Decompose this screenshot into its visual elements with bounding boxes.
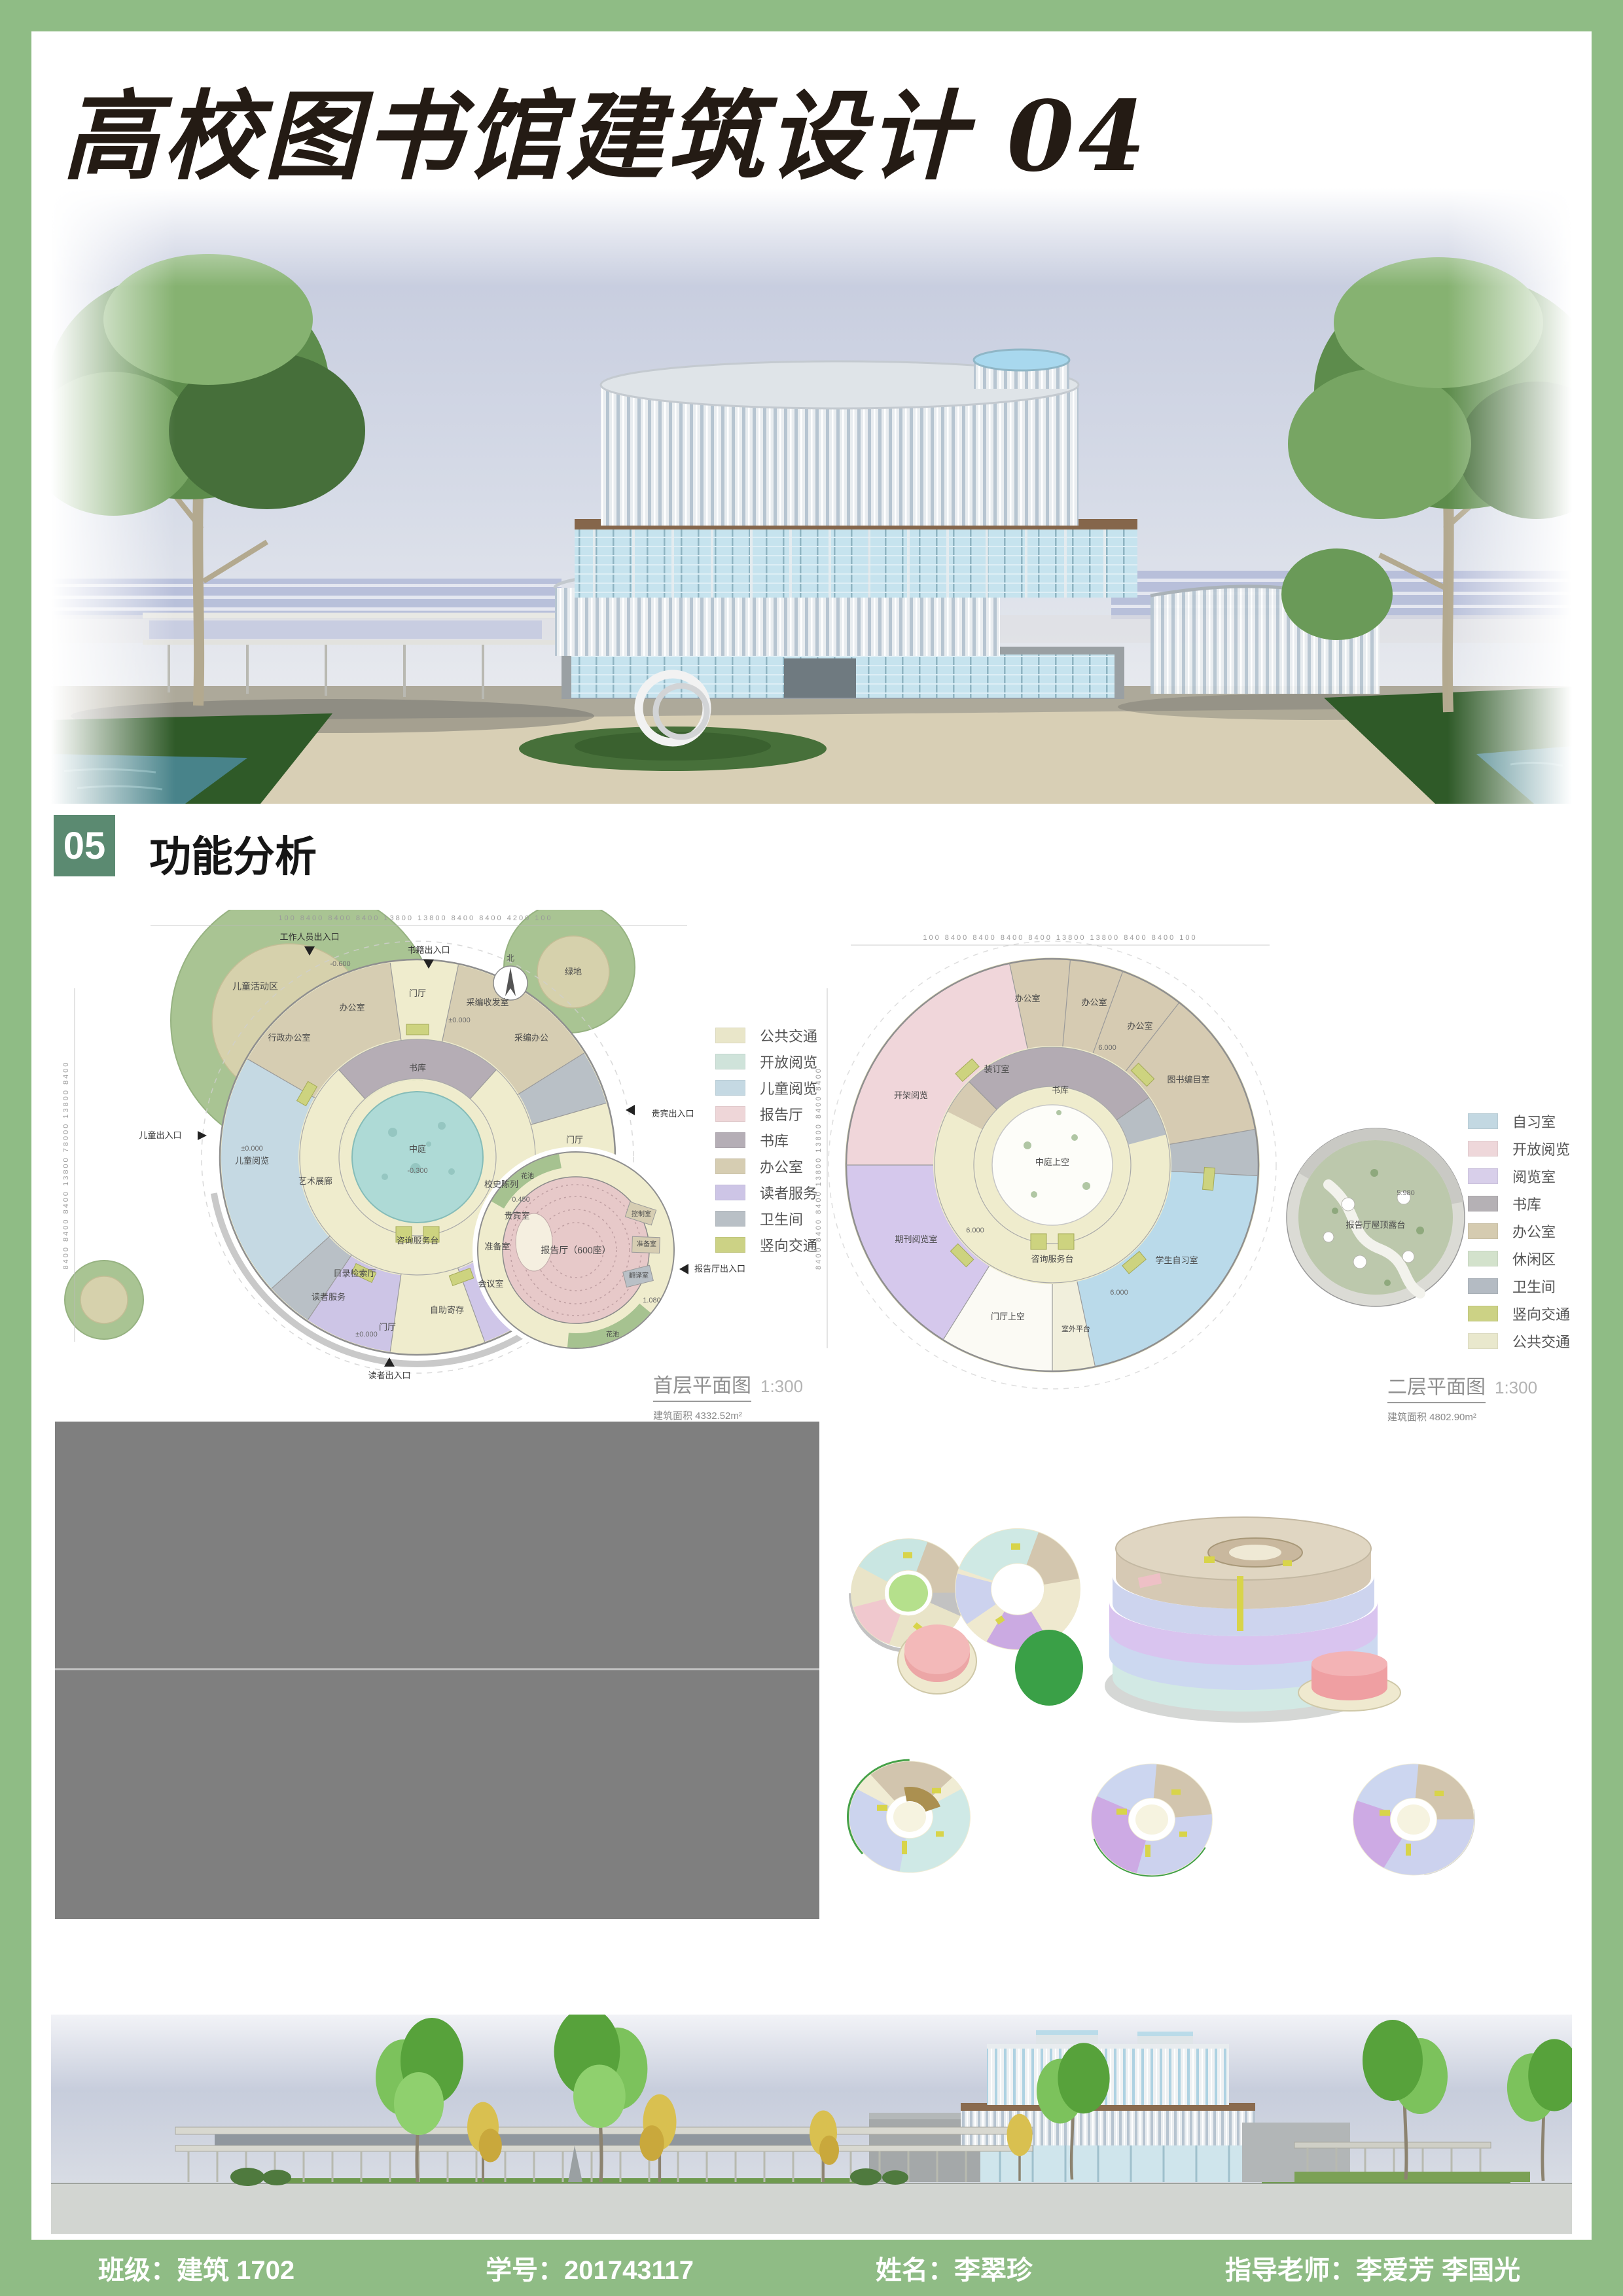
legend-swatch	[715, 1158, 745, 1174]
room-lobby-top: 门厅	[409, 988, 426, 998]
legend-swatch	[1468, 1251, 1498, 1266]
legend-label: 卫生间	[1512, 1276, 1556, 1297]
first-floor-plan: 北 100 8400 8400 8400 13800 13800 8400 84…	[59, 910, 759, 1414]
room-flower2: 花池	[606, 1330, 619, 1338]
legend-label: 办公室	[1512, 1221, 1556, 1242]
legend-label: 公共交通	[1512, 1331, 1570, 1352]
plan1-caption-title: 首层平面图	[653, 1369, 751, 1402]
hero-render	[51, 188, 1572, 804]
plan2-area: 建筑面积 4802.90m²	[1387, 1410, 1537, 1424]
level2-6c: 6.000	[1110, 1289, 1128, 1297]
legend-swatch	[715, 1028, 745, 1043]
section-title: 功能分析	[149, 823, 317, 884]
legend-label: 休闲区	[1512, 1248, 1556, 1269]
legend-item: 休闲区	[1468, 1245, 1570, 1272]
legend-item: 阅览室	[1468, 1162, 1570, 1190]
level-0-children: ±0.000	[241, 1145, 263, 1153]
image-placeholder	[55, 1422, 819, 1919]
legend-item: 儿童阅览	[715, 1075, 817, 1101]
room2-lobby-void: 门厅上空	[991, 1312, 1025, 1321]
level-m06: -0.600	[330, 960, 350, 968]
legend-item: 开放阅览	[1468, 1135, 1570, 1162]
plan2-dims-left: 8400 8400 8400 13800 13800 8400 8400	[815, 1067, 823, 1270]
room2-binding: 装订室	[984, 1064, 1009, 1074]
room2-study: 学生自习室	[1155, 1255, 1198, 1265]
room2-stack: 书库	[1052, 1085, 1069, 1095]
hero-render-illustration	[51, 188, 1572, 804]
level-atrium: -0.300	[407, 1167, 427, 1175]
legend-swatch	[1468, 1113, 1498, 1129]
legend-item: 办公室	[715, 1153, 817, 1179]
room-control: 控制室	[632, 1210, 651, 1218]
north-label: 北	[507, 954, 514, 963]
room-stack: 书库	[409, 1063, 426, 1073]
room-gallery: 艺术展廊	[298, 1176, 332, 1186]
level-0-bottom: ±0.000	[355, 1331, 378, 1338]
plan2-caption-title: 二层平面图	[1387, 1371, 1486, 1403]
footer-class-field: 班级：建筑 1702	[98, 2249, 294, 2287]
legend-item: 公共交通	[715, 1022, 817, 1049]
legend-item: 书库	[715, 1127, 817, 1153]
legend-item: 自习室	[1468, 1107, 1570, 1135]
level2-6b: 6.000	[966, 1227, 984, 1234]
room-translate: 翻译室	[629, 1271, 649, 1280]
plan1-area: 建筑面积 4332.52m²	[653, 1408, 803, 1422]
room-admin-office: 行政办公室	[268, 1033, 310, 1043]
section-number-badge: 05	[54, 815, 115, 876]
elevation-render	[51, 2015, 1572, 2234]
legend-label: 公共交通	[760, 1025, 817, 1046]
legend-item: 办公室	[1468, 1217, 1570, 1245]
room-catalog: 目录检索厅	[333, 1268, 376, 1278]
legend-swatch	[715, 1106, 745, 1122]
image-placeholder-divider	[55, 1668, 819, 1670]
entrance-vip-label: 贵宾出入口	[651, 1109, 694, 1119]
room-info-desk: 咨询服务台	[396, 1236, 438, 1246]
room-lecture: 报告厅（600座）	[541, 1245, 611, 1255]
footer-advisor-field: 指导老师：李爱芳 李国光	[1225, 2249, 1520, 2287]
legend-label: 开放阅览	[1512, 1138, 1570, 1159]
footer-class-label: 班级：	[98, 2256, 177, 2285]
room2-roof-terrace: 报告厅屋顶露台	[1346, 1220, 1405, 1230]
legend-swatch	[1468, 1223, 1498, 1239]
room-lobby-right: 门厅	[566, 1135, 583, 1145]
footer-student-id-field: 学号：201743117	[486, 2249, 694, 2287]
axon-full-stack	[1105, 1517, 1400, 1723]
room-vip: 贵宾室	[504, 1211, 529, 1221]
legend-item: 读者服务	[715, 1179, 817, 1206]
legend-swatch	[715, 1237, 745, 1253]
legend-swatch	[1468, 1333, 1498, 1349]
plan1-legend: 公共交通 开放阅览 儿童阅览 报告厅 书库 办公室 读者服务 卫生间 竖向交通	[715, 1022, 817, 1258]
room-locker: 自助寄存	[430, 1305, 464, 1315]
plan1-caption-scale: 1:300	[760, 1376, 803, 1397]
legend-item: 卫生间	[1468, 1272, 1570, 1300]
level2-598: 5.980	[1397, 1189, 1415, 1197]
room-prep2: 准备室	[637, 1240, 656, 1248]
footer-name-field: 姓名：李翠珍	[876, 2249, 1033, 2287]
room-lobby-bottom: 门厅	[379, 1322, 396, 1332]
legend-item: 报告厅	[715, 1101, 817, 1127]
legend-swatch	[1468, 1306, 1498, 1321]
second-floor-plan: 100 8400 8400 8400 8400 13800 13800 8400…	[811, 929, 1571, 1414]
legend-swatch	[1468, 1278, 1498, 1294]
entrance-lecture-label: 报告厅出入口	[694, 1264, 745, 1274]
site-green-label: 绿地	[565, 967, 582, 977]
room2-terrace-small: 室外平台	[1061, 1324, 1090, 1333]
frame-border-top	[0, 0, 1623, 31]
legend-label: 办公室	[760, 1156, 803, 1177]
plan1-dims-left: 8400 8400 8400 13800 78000 13800 8400	[62, 1061, 70, 1270]
room2-office3: 办公室	[1127, 1021, 1152, 1031]
legend-item: 卫生间	[715, 1206, 817, 1232]
axon-floor3	[827, 1740, 993, 1893]
plan1-caption: 首层平面图 1:300 建筑面积 4332.52m²	[653, 1369, 803, 1422]
entrance-staff-label: 工作人员出入口	[279, 932, 339, 942]
legend-label: 报告厅	[760, 1103, 803, 1124]
legend-item: 开放阅览	[715, 1049, 817, 1075]
room-prep: 准备室	[484, 1242, 510, 1251]
room-office: 办公室	[339, 1003, 365, 1013]
legend-label: 阅览室	[1512, 1166, 1556, 1187]
room2-void: 中庭上空	[1035, 1157, 1069, 1167]
legend-label: 书库	[760, 1130, 789, 1151]
legend-swatch	[715, 1211, 745, 1227]
axon-floor5	[1346, 1757, 1482, 1882]
footer-name-label: 姓名：	[876, 2256, 954, 2285]
legend-swatch	[1468, 1196, 1498, 1211]
room2-info-desk: 咨询服务台	[1031, 1254, 1073, 1264]
frame-border-left	[0, 0, 31, 2296]
legend-item: 竖向交通	[715, 1232, 817, 1258]
plan2-caption: 二层平面图 1:300 建筑面积 4802.90m²	[1387, 1371, 1537, 1424]
plan2-legend: 自习室 开放阅览 阅览室 书库 办公室 休闲区 卫生间 竖向交通 公共交通	[1468, 1107, 1570, 1355]
axon-floor4	[1073, 1747, 1230, 1892]
page-title: 高校图书馆建筑设计 04	[62, 58, 1175, 198]
room-flower1: 花池	[521, 1172, 534, 1180]
legend-swatch	[715, 1054, 745, 1069]
footer-id-value: 201743117	[564, 2256, 694, 2285]
legend-item: 公共交通	[1468, 1327, 1570, 1355]
legend-label: 卫生间	[760, 1208, 803, 1229]
room-reader-service: 读者服务	[312, 1292, 346, 1302]
footer-bar: 班级：建筑 1702 学号：201743117 姓名：李翠珍 指导老师：李爱芳 …	[0, 2240, 1623, 2296]
room-acq-office: 采编办公	[514, 1033, 548, 1043]
room-meeting: 会议室	[478, 1279, 503, 1289]
legend-swatch	[715, 1185, 745, 1200]
plan1-dims-top: 100 8400 8400 8400 13800 13800 8400 8400…	[278, 914, 552, 922]
level-108: 1.080	[643, 1297, 661, 1304]
legend-swatch	[1468, 1168, 1498, 1184]
legend-label: 书库	[1512, 1193, 1541, 1214]
footer-advisor-label: 指导老师：	[1225, 2256, 1356, 2285]
room2-periodicals: 期刊阅览室	[895, 1234, 937, 1244]
room2-office2: 办公室	[1081, 997, 1107, 1007]
entrance-books-label: 书籍出入口	[407, 945, 450, 955]
legend-label: 竖向交通	[1512, 1303, 1570, 1324]
room2-office1: 办公室	[1014, 994, 1040, 1003]
plan2-caption-scale: 1:300	[1495, 1378, 1537, 1398]
axon-floor2	[955, 1529, 1083, 1706]
level2-6a: 6.000	[1098, 1044, 1116, 1052]
entrance-reader-label: 读者出入口	[368, 1371, 410, 1380]
plan2-dims-top: 100 8400 8400 8400 8400 13800 13800 8400…	[923, 934, 1197, 942]
room2-catalog-office: 图书编目室	[1167, 1075, 1209, 1085]
legend-label: 儿童阅览	[760, 1077, 817, 1098]
footer-class-value: 建筑 1702	[177, 2256, 294, 2285]
room-atrium: 中庭	[409, 1144, 426, 1154]
level-0-top: ±0.000	[448, 1016, 471, 1024]
legend-label: 开放阅览	[760, 1051, 817, 1072]
legend-swatch	[1468, 1141, 1498, 1157]
entrance-children-label: 儿童出入口	[139, 1130, 181, 1140]
footer-id-label: 学号：	[486, 2256, 564, 2285]
legend-swatch	[715, 1132, 745, 1148]
legend-label: 读者服务	[760, 1182, 817, 1203]
frame-border-right	[1592, 0, 1623, 2296]
room-acq-mail: 采编收发室	[466, 997, 508, 1007]
site-children-label: 儿童活动区	[232, 981, 278, 992]
legend-item: 书库	[1468, 1190, 1570, 1217]
level-045: 0.450	[512, 1196, 530, 1204]
legend-label: 自习室	[1512, 1111, 1556, 1132]
legend-label: 竖向交通	[760, 1234, 817, 1255]
poster-page: 高校图书馆建筑设计 04	[0, 0, 1623, 2296]
legend-item: 竖向交通	[1468, 1300, 1570, 1327]
room-children: 儿童阅览	[235, 1156, 269, 1166]
footer-name-value: 李翠珍	[954, 2256, 1033, 2285]
function-axon-diagrams	[821, 1477, 1600, 1911]
legend-swatch	[715, 1080, 745, 1096]
footer-advisor-value: 李爱芳 李国光	[1356, 2256, 1520, 2285]
room2-open-reading: 开架阅览	[894, 1090, 928, 1100]
room-history: 校史陈列	[484, 1179, 518, 1189]
